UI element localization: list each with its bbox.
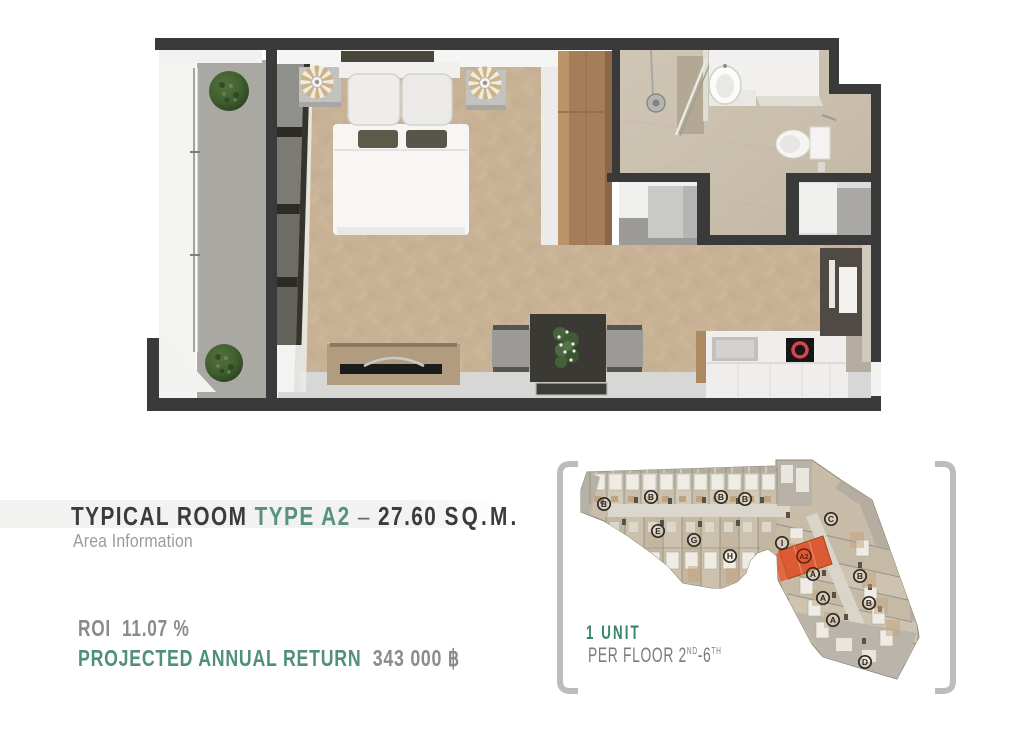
svg-text:H: H xyxy=(727,551,733,561)
svg-text:A: A xyxy=(830,615,836,625)
svg-text:C: C xyxy=(828,514,834,524)
svg-text:B: B xyxy=(742,494,748,504)
svg-text:B: B xyxy=(601,499,607,509)
svg-text:B: B xyxy=(718,492,724,502)
svg-text:B: B xyxy=(857,571,863,581)
svg-text:A: A xyxy=(820,593,826,603)
svg-text:D: D xyxy=(862,657,868,667)
svg-text:G: G xyxy=(691,535,698,545)
svg-text:E: E xyxy=(655,526,661,536)
svg-text:B: B xyxy=(648,492,654,502)
svg-text:B: B xyxy=(866,598,872,608)
svg-text:A2: A2 xyxy=(800,554,809,561)
svg-text:A: A xyxy=(810,569,816,579)
svg-text:I: I xyxy=(781,538,783,548)
